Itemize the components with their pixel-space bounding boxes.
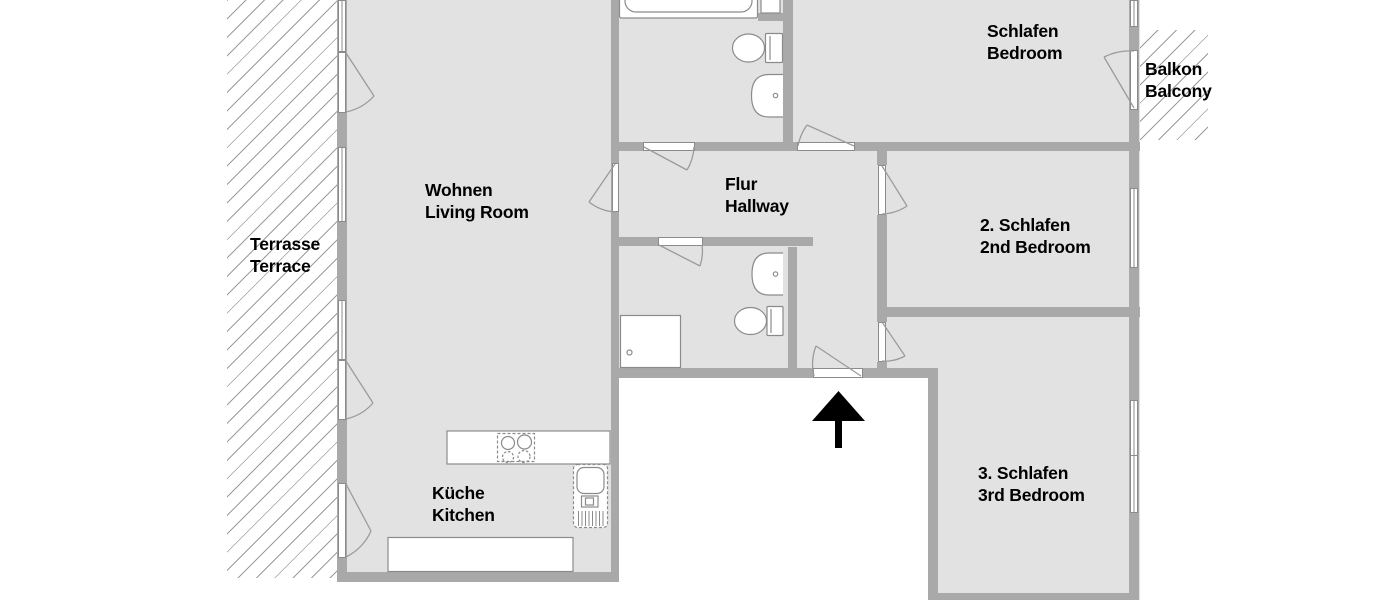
shower bbox=[621, 316, 681, 368]
room-label-balcony: Balkon Balcony bbox=[1145, 59, 1212, 102]
room-label-bedroom3-en: 3rd Bedroom bbox=[978, 485, 1085, 507]
room-label-hallway-de: Flur bbox=[725, 174, 789, 196]
room-label-living-en: Living Room bbox=[425, 202, 529, 224]
room-label-kitchen-de: Küche bbox=[432, 483, 495, 505]
room-label-bedroom2: 2. Schlafen 2nd Bedroom bbox=[980, 215, 1091, 258]
room-label-living-de: Wohnen bbox=[425, 180, 529, 202]
entrance-arrow bbox=[812, 391, 865, 448]
toilet-bowl bbox=[733, 34, 765, 62]
wc-toilet-tank bbox=[767, 307, 783, 336]
room-label-terrace: Terrasse Terrace bbox=[250, 234, 320, 277]
room-label-balcony-de: Balkon bbox=[1145, 59, 1212, 81]
room-label-balcony-en: Balcony bbox=[1145, 81, 1212, 103]
toilet-tank bbox=[766, 34, 783, 63]
room-label-bedroom2-en: 2nd Bedroom bbox=[980, 237, 1091, 259]
bathtub bbox=[620, 0, 758, 18]
room-label-hallway: Flur Hallway bbox=[725, 174, 789, 217]
room-label-bedroom-en: Bedroom bbox=[987, 43, 1062, 65]
wall-niche bbox=[761, 0, 780, 13]
room-label-kitchen-en: Kitchen bbox=[432, 505, 495, 527]
wc-toilet-bowl bbox=[735, 308, 767, 335]
wc-washbasin bbox=[752, 253, 783, 295]
kitchen-counter-bottom bbox=[388, 538, 573, 572]
room-label-kitchen: Küche Kitchen bbox=[432, 483, 495, 526]
room-label-terrace-de: Terrasse bbox=[250, 234, 320, 256]
room-label-bedroom2-de: 2. Schlafen bbox=[980, 215, 1091, 237]
room-label-bedroom: Schlafen Bedroom bbox=[987, 21, 1062, 64]
floor-plan: Wohnen Living Room Küche Kitchen Flur Ha… bbox=[0, 0, 1400, 600]
room-label-bedroom3: 3. Schlafen 3rd Bedroom bbox=[978, 463, 1085, 506]
room-label-living: Wohnen Living Room bbox=[425, 180, 529, 223]
room-label-bedroom-de: Schlafen bbox=[987, 21, 1062, 43]
room-label-terrace-en: Terrace bbox=[250, 256, 320, 278]
room-label-hallway-en: Hallway bbox=[725, 196, 789, 218]
room-label-bedroom3-de: 3. Schlafen bbox=[978, 463, 1085, 485]
